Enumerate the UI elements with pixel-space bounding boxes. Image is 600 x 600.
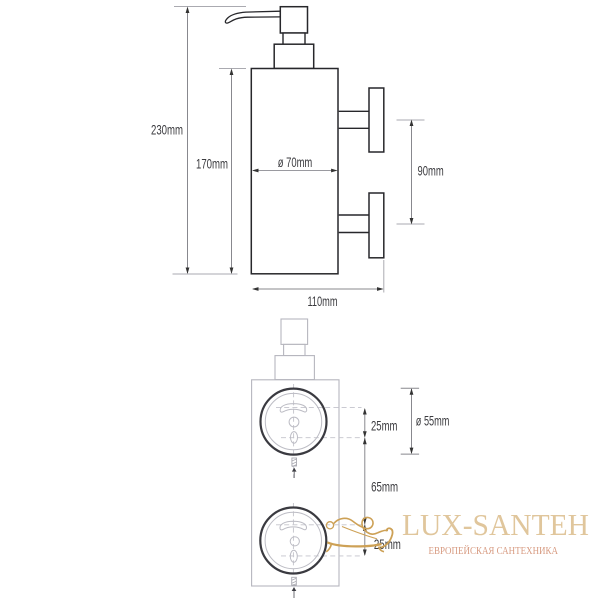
svg-text:110mm: 110mm bbox=[308, 294, 338, 309]
svg-text:65mm: 65mm bbox=[371, 480, 398, 495]
svg-text:ø 70mm: ø 70mm bbox=[278, 155, 313, 170]
svg-text:170mm: 170mm bbox=[196, 156, 228, 171]
svg-text:230mm: 230mm bbox=[151, 123, 183, 138]
svg-text:25mm: 25mm bbox=[371, 419, 397, 434]
svg-text:ЕВРОПЕЙСКАЯ САНТЕХНИКА: ЕВРОПЕЙСКАЯ САНТЕХНИКА bbox=[429, 545, 559, 557]
svg-text:LUX-SANTEH: LUX-SANTEH bbox=[402, 507, 589, 542]
svg-text:ø 55mm: ø 55mm bbox=[416, 413, 450, 428]
svg-text:90mm: 90mm bbox=[418, 163, 444, 178]
